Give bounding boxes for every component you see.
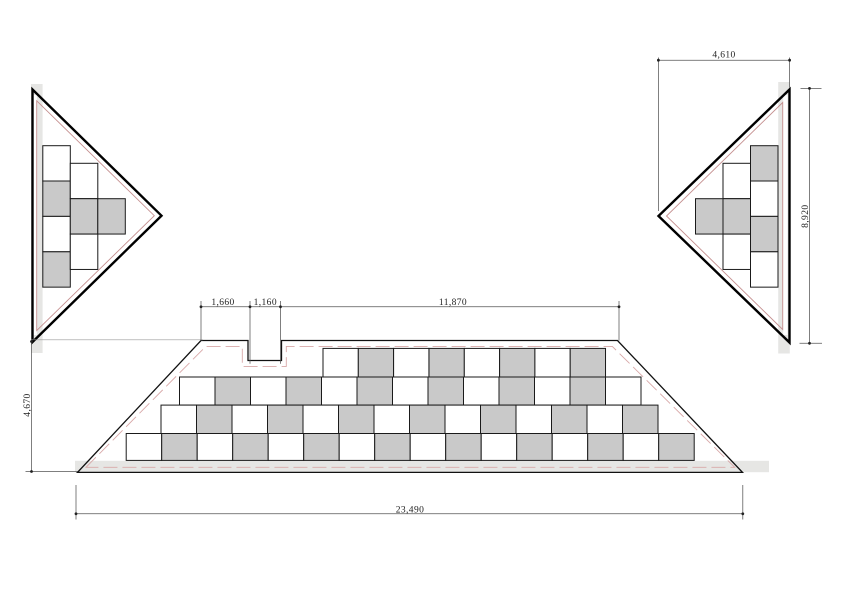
svg-text:4,670: 4,670	[23, 393, 33, 416]
svg-text:4,610: 4,610	[712, 51, 735, 61]
svg-text:1,660: 1,660	[211, 298, 234, 308]
svg-text:11,870: 11,870	[439, 298, 467, 308]
svg-text:1,160: 1,160	[254, 298, 277, 308]
svg-text:23,490: 23,490	[396, 506, 425, 516]
svg-text:8,920: 8,920	[801, 205, 811, 228]
